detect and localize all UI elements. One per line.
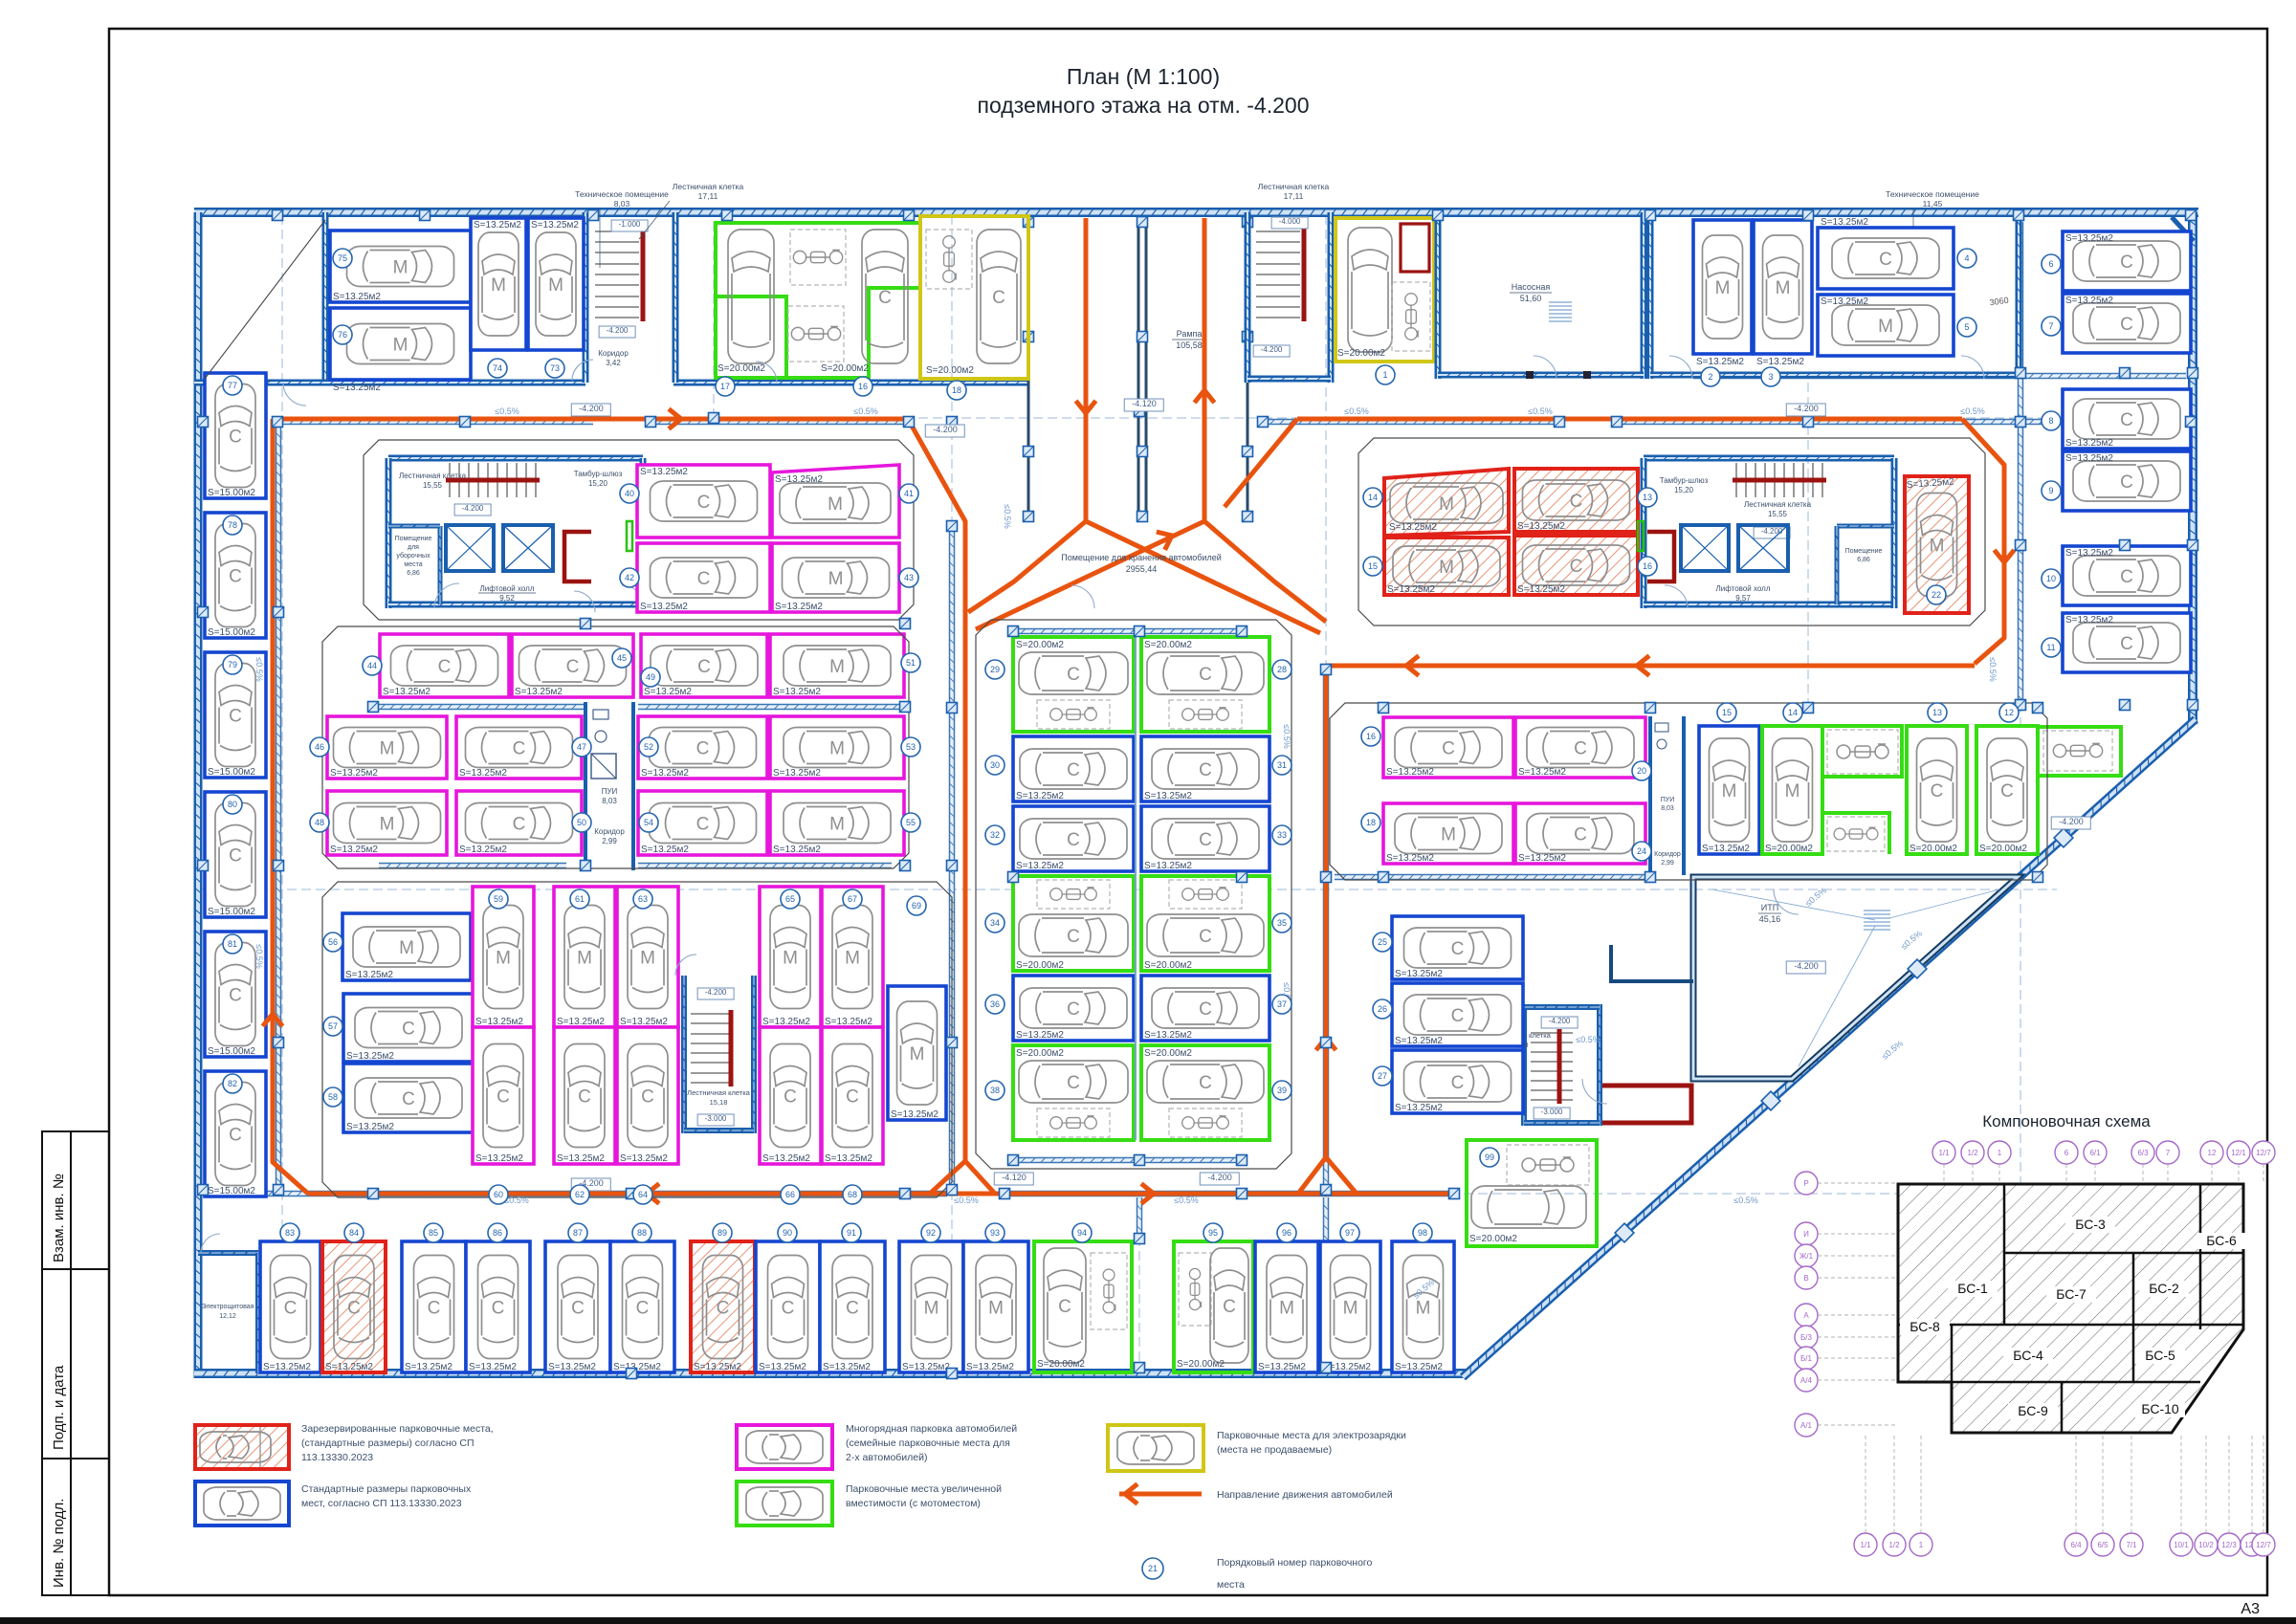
svg-text:С: С — [428, 1299, 441, 1319]
svg-text:ПУИ: ПУИ — [602, 787, 618, 796]
svg-text:S=13.25м2: S=13.25м2 — [620, 1153, 668, 1164]
svg-text:79: 79 — [228, 660, 237, 669]
svg-text:Направление движения автомобил: Направление движения автомобилей — [1217, 1489, 1393, 1501]
svg-text:S=13.25м2: S=13.25м2 — [966, 1362, 1014, 1372]
svg-text:1/2: 1/2 — [1888, 1541, 1900, 1549]
svg-text:Помещение: Помещение — [395, 536, 432, 542]
svg-text:S=20.00м2: S=20.00м2 — [1469, 1234, 1517, 1244]
svg-text:55: 55 — [906, 818, 916, 827]
svg-text:М: М — [829, 657, 845, 677]
svg-text:≤0.5%: ≤0.5% — [495, 406, 519, 416]
svg-text:S=13.25м2: S=13.25м2 — [773, 768, 821, 779]
svg-text:С: С — [1199, 1073, 1212, 1093]
svg-text:S=13.25м2: S=13.25м2 — [2065, 233, 2113, 244]
svg-text:-3.000: -3.000 — [1541, 1108, 1563, 1116]
svg-text:≤0.5%: ≤0.5% — [853, 406, 877, 416]
svg-text:15,55: 15,55 — [1768, 510, 1788, 518]
svg-text:С: С — [2120, 567, 2133, 587]
svg-text:9,52: 9,52 — [499, 594, 515, 603]
svg-text:9: 9 — [2048, 486, 2053, 495]
svg-text:≤0.5%: ≤0.5% — [254, 944, 264, 968]
svg-text:14: 14 — [1368, 493, 1378, 502]
svg-text:67: 67 — [848, 894, 857, 904]
svg-text:1: 1 — [1998, 1149, 2002, 1157]
svg-text:24: 24 — [1637, 846, 1646, 856]
svg-text:С: С — [492, 1299, 505, 1319]
svg-text:2,99: 2,99 — [602, 837, 617, 845]
svg-text:Б/3: Б/3 — [1800, 1333, 1812, 1342]
svg-text:М: М — [380, 739, 395, 759]
svg-text:С: С — [1451, 1006, 1465, 1026]
svg-text:8: 8 — [2048, 416, 2053, 426]
svg-text:6/5: 6/5 — [2097, 1541, 2108, 1549]
svg-text:S=20.00м2: S=20.00м2 — [1910, 844, 1957, 854]
svg-text:С: С — [992, 288, 1005, 308]
svg-text:М: М — [1416, 1299, 1431, 1319]
svg-text:64: 64 — [638, 1190, 648, 1199]
svg-text:58: 58 — [328, 1092, 338, 1102]
svg-text:S=13.25м2: S=13.25м2 — [531, 220, 579, 230]
svg-text:С: С — [846, 1087, 859, 1108]
svg-text:16: 16 — [1366, 732, 1376, 741]
svg-text:S=13.25м2: S=13.25м2 — [762, 1153, 810, 1164]
svg-text:75: 75 — [338, 253, 347, 263]
svg-text:77: 77 — [228, 381, 237, 390]
svg-text:3: 3 — [1768, 372, 1773, 382]
svg-text:С: С — [1199, 760, 1212, 780]
svg-text:С: С — [284, 1299, 298, 1319]
svg-text:С: С — [229, 707, 242, 727]
svg-text:S=13.25м2: S=13.25м2 — [1144, 1030, 1192, 1041]
svg-text:S=13.25м2: S=13.25м2 — [775, 474, 823, 485]
svg-text:6,86: 6,86 — [407, 570, 420, 577]
svg-text:≤0.5%: ≤0.5% — [1960, 406, 1984, 416]
svg-text:С: С — [402, 1020, 415, 1040]
svg-text:-4.120: -4.120 — [1002, 1173, 1027, 1182]
svg-text:≤0.5%: ≤0.5% — [954, 1196, 978, 1205]
svg-text:М: М — [1878, 317, 1893, 337]
svg-text:S=13.25м2: S=13.25м2 — [1016, 861, 1064, 871]
svg-text:11,45: 11,45 — [1923, 199, 1943, 208]
svg-text:15,18: 15,18 — [710, 1098, 728, 1107]
svg-text:М: М — [640, 949, 655, 969]
svg-text:-4.200: -4.200 — [1794, 404, 1819, 413]
svg-text:Коридор: Коридор — [598, 349, 629, 358]
svg-text:97: 97 — [1345, 1228, 1355, 1238]
svg-text:С: С — [696, 739, 710, 759]
svg-text:М: М — [1441, 825, 1456, 845]
svg-text:И: И — [1803, 1230, 1809, 1239]
svg-text:S=20.00м2: S=20.00м2 — [821, 363, 869, 374]
svg-text:А/4: А/4 — [1800, 1376, 1813, 1385]
svg-text:S=15.00м2: S=15.00м2 — [208, 1046, 255, 1057]
svg-text:7: 7 — [2166, 1149, 2171, 1157]
svg-text:S=13.25м2: S=13.25м2 — [469, 1362, 517, 1372]
svg-text:26: 26 — [1378, 1004, 1387, 1014]
svg-text:37: 37 — [1277, 999, 1287, 1009]
svg-text:43: 43 — [904, 573, 914, 582]
svg-text:Ж/1: Ж/1 — [1799, 1252, 1814, 1261]
svg-text:места: места — [404, 561, 422, 568]
svg-text:БС-10: БС-10 — [2141, 1401, 2179, 1416]
svg-text:S=20.00м2: S=20.00м2 — [1016, 960, 1064, 971]
svg-text:1: 1 — [1382, 370, 1387, 380]
svg-text:С: С — [1067, 1073, 1080, 1093]
svg-text:S=13.25м2: S=13.25м2 — [1756, 357, 1804, 367]
svg-text:56: 56 — [328, 937, 338, 947]
svg-text:14: 14 — [1788, 708, 1798, 717]
svg-text:С: С — [2000, 781, 2014, 801]
svg-text:98: 98 — [1418, 1228, 1427, 1238]
svg-text:Инв. № подл.: Инв. № подл. — [51, 1499, 67, 1588]
svg-text:С: С — [1879, 250, 1892, 270]
svg-text:90: 90 — [783, 1228, 792, 1238]
svg-text:С: С — [1199, 927, 1212, 947]
svg-text:11: 11 — [2046, 643, 2055, 652]
svg-text:S=13.25м2: S=13.25м2 — [1389, 522, 1437, 533]
svg-text:S=13.25м2: S=13.25м2 — [263, 1362, 311, 1372]
svg-text:Взам. инв. №: Взам. инв. № — [51, 1174, 67, 1262]
svg-text:≤0.5%: ≤0.5% — [1344, 406, 1368, 416]
svg-text:А3: А3 — [2241, 1601, 2260, 1617]
svg-text:S=13.25м2: S=13.25м2 — [823, 1362, 871, 1372]
svg-text:В: В — [1803, 1274, 1808, 1283]
svg-text:С: С — [636, 1299, 650, 1319]
svg-text:S=13.25м2: S=13.25м2 — [775, 602, 823, 612]
svg-text:С: С — [1058, 1297, 1071, 1317]
svg-text:(стандартные размеры) согласно: (стандартные размеры) согласно СП — [301, 1437, 475, 1449]
svg-text:С: С — [878, 288, 892, 308]
svg-text:S=13.25м2: S=13.25м2 — [773, 687, 821, 697]
svg-text:S=13.25м2: S=13.25м2 — [459, 845, 507, 855]
svg-text:5: 5 — [1964, 322, 1969, 332]
svg-text:S=13.25м2: S=13.25м2 — [773, 845, 821, 855]
svg-text:S=13.25м2: S=13.25м2 — [330, 845, 378, 855]
svg-text:М: М — [1776, 278, 1791, 298]
svg-text:S=15.00м2: S=15.00м2 — [208, 627, 255, 638]
svg-text:27: 27 — [1378, 1071, 1387, 1081]
svg-text:-4.000: -4.000 — [1279, 217, 1301, 226]
svg-text:82: 82 — [228, 1079, 237, 1088]
svg-text:48: 48 — [315, 818, 324, 827]
svg-text:20: 20 — [1637, 766, 1646, 776]
svg-text:51,60: 51,60 — [1520, 294, 1542, 303]
svg-text:76: 76 — [338, 330, 347, 340]
svg-text:Многорядная парковка автомобил: Многорядная парковка автомобилей — [846, 1423, 1017, 1435]
svg-text:S=13.25м2: S=13.25м2 — [1144, 861, 1192, 871]
svg-text:S=13.25м2: S=13.25м2 — [346, 1051, 394, 1062]
svg-text:6,86: 6,86 — [1857, 557, 1870, 563]
svg-text:S=13.25м2: S=13.25м2 — [1386, 853, 1434, 864]
svg-text:≤0.5%: ≤0.5% — [1174, 1196, 1198, 1205]
svg-text:S=13.25м2: S=13.25м2 — [1518, 853, 1566, 864]
svg-text:ПУИ: ПУИ — [1661, 797, 1675, 803]
svg-text:6: 6 — [2064, 1149, 2069, 1157]
svg-text:8,03: 8,03 — [1661, 805, 1674, 812]
svg-text:3,42: 3,42 — [606, 359, 621, 367]
svg-text:М: М — [577, 949, 592, 969]
svg-text:S=20.00м2: S=20.00м2 — [926, 365, 974, 376]
svg-text:С: С — [1570, 557, 1583, 577]
svg-text:7: 7 — [2048, 321, 2053, 331]
svg-text:-4.200: -4.200 — [579, 404, 604, 413]
svg-text:78: 78 — [228, 520, 237, 530]
svg-text:С: С — [1574, 739, 1587, 759]
svg-text:Зарезервированные парковочные: Зарезервированные парковочные места, — [301, 1423, 494, 1435]
svg-text:4: 4 — [1964, 253, 1969, 263]
svg-text:15,20: 15,20 — [1674, 486, 1694, 494]
svg-text:Р: Р — [1803, 1179, 1808, 1188]
svg-text:-4.200: -4.200 — [607, 326, 629, 335]
svg-text:С: С — [2120, 472, 2133, 493]
svg-text:S=13.25м2: S=13.25м2 — [346, 1122, 394, 1132]
svg-text:Парковочные места увеличенной: Парковочные места увеличенной — [846, 1483, 1002, 1495]
svg-text:Техническое помещение: Техническое помещение — [1886, 189, 1979, 199]
svg-text:S=13.25м2: S=13.25м2 — [1821, 296, 1868, 307]
svg-text:S=13.25м2: S=13.25м2 — [1258, 1362, 1306, 1372]
svg-text:М: М — [1279, 1299, 1294, 1319]
svg-text:17: 17 — [720, 382, 730, 391]
svg-text:S=20.00м2: S=20.00м2 — [1765, 844, 1813, 854]
svg-text:Техническое помещение: Техническое помещение — [575, 189, 669, 199]
svg-text:93: 93 — [990, 1228, 1000, 1238]
svg-text:38: 38 — [990, 1086, 1000, 1095]
svg-text:≤0.5%: ≤0.5% — [1003, 504, 1012, 528]
svg-text:М: М — [380, 815, 395, 835]
svg-text:33: 33 — [1277, 830, 1287, 840]
svg-text:S=20.00м2: S=20.00м2 — [1144, 960, 1192, 971]
svg-text:13: 13 — [1643, 493, 1652, 502]
svg-text:С: С — [2120, 634, 2133, 654]
svg-text:S=13.25м2: S=13.25м2 — [515, 687, 563, 697]
svg-text:С: С — [229, 1126, 242, 1146]
svg-text:Тамбур-шлюз: Тамбур-шлюз — [1660, 476, 1709, 485]
svg-text:S=13.25м2: S=13.25м2 — [333, 292, 381, 302]
svg-text:М: М — [393, 336, 408, 356]
svg-text:69: 69 — [912, 901, 921, 911]
svg-text:91: 91 — [847, 1228, 856, 1238]
svg-text:S=13.25м2: S=13.25м2 — [640, 602, 688, 612]
svg-text:Лифтовой холл: Лифтовой холл — [480, 584, 535, 593]
svg-text:50: 50 — [577, 818, 586, 827]
svg-text:S=13.25м2: S=13.25м2 — [902, 1362, 950, 1372]
svg-text:План (М 1:100): План (М 1:100) — [1067, 64, 1220, 89]
svg-text:Парковочные места для электроз: Парковочные места для электрозарядки — [1217, 1430, 1406, 1441]
svg-text:М: М — [988, 1299, 1004, 1319]
svg-text:Стандартные размеры парковочны: Стандартные размеры парковочных — [301, 1483, 472, 1495]
svg-text:1: 1 — [1919, 1541, 1924, 1549]
svg-text:С: С — [696, 815, 710, 835]
svg-text:М: М — [1715, 278, 1731, 298]
svg-text:-4.200: -4.200 — [1207, 1173, 1232, 1182]
svg-text:М: М — [783, 949, 798, 969]
svg-text:БС-8: БС-8 — [1910, 1319, 1940, 1334]
svg-text:S=13.25м2: S=13.25м2 — [1395, 1036, 1443, 1046]
svg-text:С: С — [1570, 492, 1583, 512]
svg-text:54: 54 — [644, 818, 653, 827]
svg-text:68: 68 — [848, 1190, 857, 1199]
svg-text:86: 86 — [493, 1228, 502, 1238]
svg-text:32: 32 — [990, 830, 1000, 840]
svg-text:Лестничная клетка: Лестничная клетка — [673, 182, 744, 191]
svg-text:М: М — [1439, 494, 1454, 515]
svg-text:S=13.25м2: S=13.25м2 — [1702, 844, 1750, 854]
svg-text:БС-2: БС-2 — [2149, 1281, 2179, 1296]
svg-text:80: 80 — [228, 800, 237, 809]
svg-text:22: 22 — [1932, 590, 1941, 600]
svg-text:S=13.25м2: S=13.25м2 — [759, 1362, 806, 1372]
svg-text:С: С — [1067, 830, 1080, 850]
svg-text:S=13.25м2: S=13.25м2 — [1517, 521, 1565, 532]
svg-text:≤0.5%: ≤0.5% — [254, 657, 264, 681]
svg-text:8,03: 8,03 — [614, 199, 630, 208]
svg-text:С: С — [229, 846, 242, 867]
svg-text:88: 88 — [637, 1228, 647, 1238]
svg-text:С: С — [697, 569, 711, 589]
svg-text:12/3: 12/3 — [2221, 1541, 2237, 1549]
svg-text:84: 84 — [349, 1228, 359, 1238]
svg-text:66: 66 — [785, 1190, 795, 1199]
svg-text:45: 45 — [617, 653, 627, 663]
svg-text:S=20.00м2: S=20.00м2 — [1037, 1359, 1085, 1370]
svg-text:С: С — [566, 657, 580, 677]
svg-text:Лестничная клетка: Лестничная клетка — [399, 472, 467, 480]
svg-text:42: 42 — [625, 573, 634, 582]
svg-text:S=13.25м2: S=13.25м2 — [330, 768, 378, 779]
svg-text:62: 62 — [575, 1190, 585, 1199]
svg-text:S=13.25м2: S=13.25м2 — [1016, 1030, 1064, 1041]
svg-text:6: 6 — [2048, 259, 2053, 269]
svg-text:25: 25 — [1378, 937, 1387, 947]
svg-text:-4.200: -4.200 — [462, 504, 484, 513]
svg-text:36: 36 — [990, 999, 1000, 1009]
svg-text:М: М — [1722, 781, 1737, 801]
svg-text:60: 60 — [494, 1190, 503, 1199]
svg-text:S=13.25м2: S=13.25м2 — [641, 768, 689, 779]
svg-text:С: С — [1199, 830, 1212, 850]
svg-text:41: 41 — [904, 489, 914, 498]
svg-text:М: М — [829, 815, 845, 835]
svg-text:S=20.00м2: S=20.00м2 — [1337, 348, 1385, 359]
svg-text:С: С — [402, 1089, 415, 1109]
svg-text:С: С — [1199, 665, 1212, 685]
svg-text:БС-9: БС-9 — [2018, 1403, 2048, 1418]
svg-text:S=15.00м2: S=15.00м2 — [208, 1186, 255, 1196]
svg-text:-4.200: -4.200 — [1261, 345, 1283, 354]
svg-text:2955,44: 2955,44 — [1126, 564, 1158, 574]
svg-text:С: С — [2120, 410, 2133, 430]
svg-text:S=13.25м2: S=13.25м2 — [1395, 1362, 1443, 1372]
svg-text:≤0.5%: ≤0.5% — [1988, 657, 1998, 681]
svg-text:92: 92 — [926, 1228, 936, 1238]
svg-text:Подп. и дата: Подп. и дата — [51, 1365, 67, 1450]
svg-text:S=20.00м2: S=20.00м2 — [717, 363, 765, 374]
svg-text:44: 44 — [367, 661, 377, 670]
svg-text:S=13.25м2: S=13.25м2 — [2065, 615, 2113, 625]
svg-text:М: М — [828, 569, 844, 589]
svg-text:6/1: 6/1 — [2089, 1149, 2101, 1157]
svg-text:15,20: 15,20 — [588, 479, 608, 488]
svg-text:С: С — [1067, 665, 1080, 685]
svg-text:Коридор: Коридор — [1654, 851, 1681, 858]
svg-text:М: М — [548, 275, 563, 296]
svg-text:С: С — [347, 1299, 361, 1319]
svg-text:уборочных: уборочных — [396, 552, 430, 560]
svg-text:57: 57 — [328, 1021, 338, 1031]
svg-text:-1.000: -1.000 — [619, 220, 641, 229]
svg-text:85: 85 — [429, 1228, 438, 1238]
svg-text:БС-6: БС-6 — [2206, 1233, 2237, 1248]
svg-text:А/1: А/1 — [1800, 1421, 1813, 1430]
svg-text:10/1: 10/1 — [2174, 1541, 2189, 1549]
svg-text:подземного этажа на отм. -4.20: подземного этажа на отм. -4.200 — [978, 93, 1310, 118]
svg-text:8,03: 8,03 — [602, 797, 617, 805]
svg-text:2,99: 2,99 — [1661, 860, 1674, 867]
svg-text:БС-5: БС-5 — [2145, 1348, 2175, 1363]
svg-text:С: С — [717, 1299, 730, 1319]
svg-text:С: С — [1199, 999, 1212, 1020]
svg-text:113.13330.2023: 113.13330.2023 — [301, 1452, 373, 1463]
svg-text:1/2: 1/2 — [1967, 1149, 1978, 1157]
svg-text:S=13.25м2: S=13.25м2 — [557, 1153, 605, 1164]
svg-text:S=15.00м2: S=15.00м2 — [208, 488, 255, 498]
svg-text:С: С — [697, 493, 711, 513]
svg-text:БС-7: БС-7 — [2056, 1286, 2086, 1302]
svg-text:-3.000: -3.000 — [705, 1114, 727, 1123]
svg-text:S=13.25м2: S=13.25м2 — [640, 467, 688, 477]
svg-text:73: 73 — [550, 363, 560, 373]
svg-text:БС-3: БС-3 — [2075, 1217, 2106, 1232]
svg-text:2: 2 — [1708, 372, 1712, 382]
svg-text:С: С — [1451, 1073, 1465, 1093]
svg-text:М: М — [829, 739, 845, 759]
svg-text:52: 52 — [644, 742, 653, 752]
svg-text:Лестничная клетка: Лестничная клетка — [687, 1088, 751, 1097]
svg-text:S=13.25м2: S=13.25м2 — [1395, 1103, 1443, 1113]
svg-text:46: 46 — [315, 742, 324, 752]
svg-text:S=13.25м2: S=13.25м2 — [548, 1362, 596, 1372]
svg-text:С: С — [1574, 825, 1587, 845]
svg-text:S=20.00м2: S=20.00м2 — [1144, 640, 1192, 650]
svg-text:S=13.25м2: S=13.25м2 — [1821, 217, 1868, 228]
svg-text:S=13.25м2: S=13.25м2 — [1395, 969, 1443, 979]
svg-text:С: С — [571, 1299, 585, 1319]
svg-text:Коридор: Коридор — [594, 827, 625, 836]
svg-text:99: 99 — [1485, 1152, 1494, 1162]
svg-text:49: 49 — [646, 672, 655, 682]
svg-text:S=13.25м2: S=13.25м2 — [694, 1362, 741, 1372]
svg-text:С: С — [513, 815, 526, 835]
svg-text:1/1: 1/1 — [1860, 1541, 1871, 1549]
svg-text:S=13.25м2: S=13.25м2 — [405, 1362, 453, 1372]
svg-text:1/1: 1/1 — [1938, 1149, 1950, 1157]
svg-text:S=13.25м2: S=13.25м2 — [475, 1153, 523, 1164]
svg-text:95: 95 — [1208, 1228, 1218, 1238]
svg-text:Б/1: Б/1 — [1800, 1354, 1812, 1363]
svg-text:для: для — [408, 544, 419, 551]
svg-text:S=13.25м2: S=13.25м2 — [1386, 767, 1434, 778]
svg-text:Компоновочная схема: Компоновочная схема — [1982, 1112, 2151, 1130]
svg-text:С: С — [2120, 315, 2133, 335]
svg-text:≤0.5%: ≤0.5% — [1733, 1196, 1757, 1205]
svg-text:М: М — [1439, 558, 1454, 578]
svg-text:12/7: 12/7 — [2256, 1541, 2271, 1549]
svg-text:31: 31 — [1277, 760, 1287, 770]
svg-text:S=13.25м2: S=13.25м2 — [2065, 438, 2113, 449]
svg-text:94: 94 — [1077, 1228, 1087, 1238]
svg-text:-4.200: -4.200 — [1794, 961, 1819, 971]
svg-text:М: М — [828, 494, 843, 515]
